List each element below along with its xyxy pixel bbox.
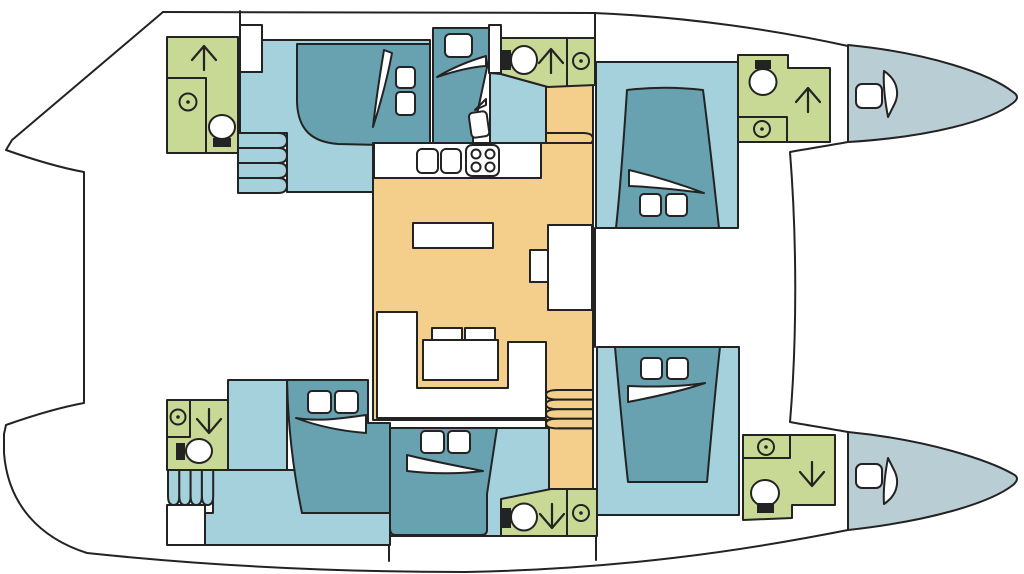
pillow: [445, 34, 472, 57]
pillow: [640, 194, 661, 216]
head-aft-bottom: [167, 400, 228, 470]
locker: [240, 25, 262, 72]
sofa-cushion: [432, 328, 462, 340]
foredeck-inner-edge: [790, 142, 848, 432]
hull-steps-bottom: [168, 470, 213, 505]
salon: [373, 143, 593, 420]
hull-steps-top: [238, 133, 287, 193]
deck-hatch-icon: [856, 464, 882, 488]
cabin-aft-bottom-floor-a: [228, 380, 287, 470]
toilet-icon: [502, 46, 537, 74]
companionway-stairs-aft: [546, 390, 593, 428]
forepeak-top: [848, 45, 1017, 142]
deck-plan-page: [0, 0, 1024, 574]
head-forward-top: [738, 55, 830, 142]
stove-icon: [466, 145, 499, 176]
dinette-table: [413, 223, 493, 248]
pillow: [421, 431, 444, 453]
locker: [489, 25, 501, 73]
cabin-forward-top: [596, 62, 738, 228]
transom-step: [167, 505, 205, 545]
sofa-cushion: [465, 328, 495, 340]
pillow: [641, 358, 662, 379]
catamaran-deck-plan: [0, 0, 1024, 574]
pillow: [396, 92, 415, 115]
pillow: [335, 391, 358, 413]
pillow: [667, 358, 688, 379]
head-aft-top: [167, 37, 238, 153]
head-mid-bottom: [501, 489, 597, 536]
coffee-table: [423, 340, 498, 380]
deck-hatch-icon: [856, 84, 882, 108]
head-forward-bottom: [743, 435, 835, 520]
pillow: [396, 67, 415, 88]
pillow: [448, 431, 470, 453]
pillow: [308, 391, 331, 413]
pillow: [468, 111, 489, 138]
forepeak-bottom: [848, 432, 1017, 530]
cabin-forward-bottom: [597, 347, 739, 515]
pillow: [666, 194, 687, 216]
